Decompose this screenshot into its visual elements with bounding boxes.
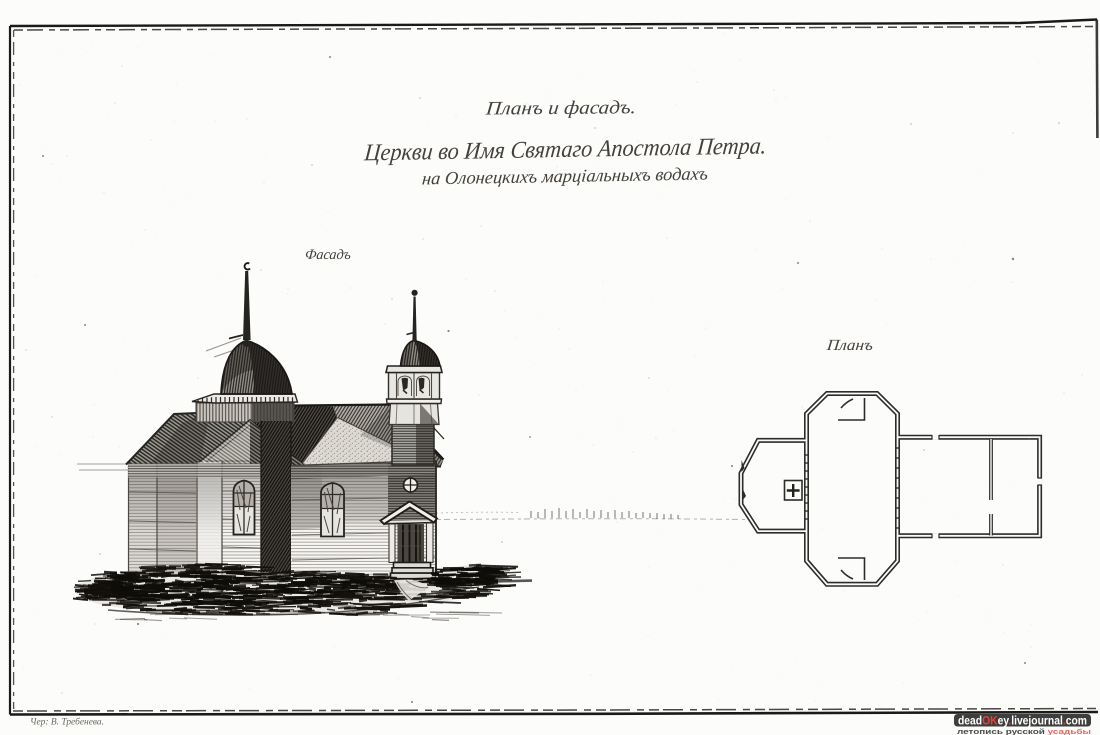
- svg-text:deadOKey.livejournal.com: deadOKey.livejournal.com: [958, 714, 1087, 728]
- svg-text:летопись русской усадьбы: летопись русской усадьбы: [957, 728, 1091, 735]
